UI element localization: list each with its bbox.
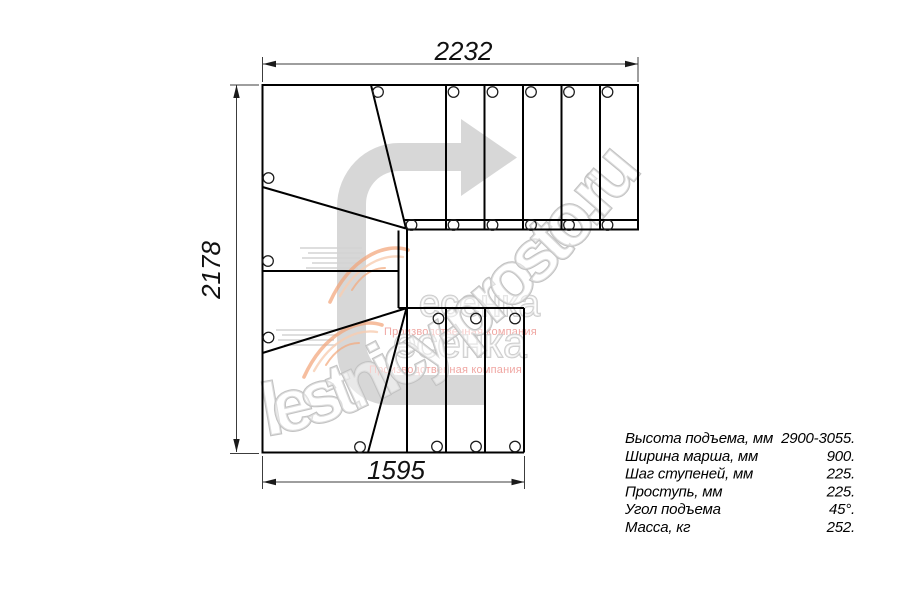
- svg-text:2178: 2178: [196, 241, 226, 300]
- svg-text:2900-3055.: 2900-3055.: [780, 430, 855, 447]
- svg-text:Шаг ступеней, мм: Шаг ступеней, мм: [625, 466, 753, 483]
- svg-text:45°.: 45°.: [829, 501, 855, 518]
- svg-text:Угол подъема: Угол подъема: [624, 501, 721, 518]
- svg-text:225.: 225.: [826, 466, 855, 483]
- svg-text:Проступь, мм: Проступь, мм: [625, 483, 722, 500]
- svg-text:2232: 2232: [434, 36, 493, 66]
- svg-text:225.: 225.: [826, 483, 855, 500]
- svg-text:900.: 900.: [827, 448, 855, 465]
- svg-text:Ширина марша, мм: Ширина марша, мм: [625, 448, 758, 465]
- svg-text:1595: 1595: [367, 455, 425, 485]
- svg-text:Высота подъема, мм: Высота подъема, мм: [625, 430, 773, 447]
- svg-text:Масса, кг: Масса, кг: [625, 519, 691, 536]
- svg-text:252.: 252.: [826, 519, 855, 536]
